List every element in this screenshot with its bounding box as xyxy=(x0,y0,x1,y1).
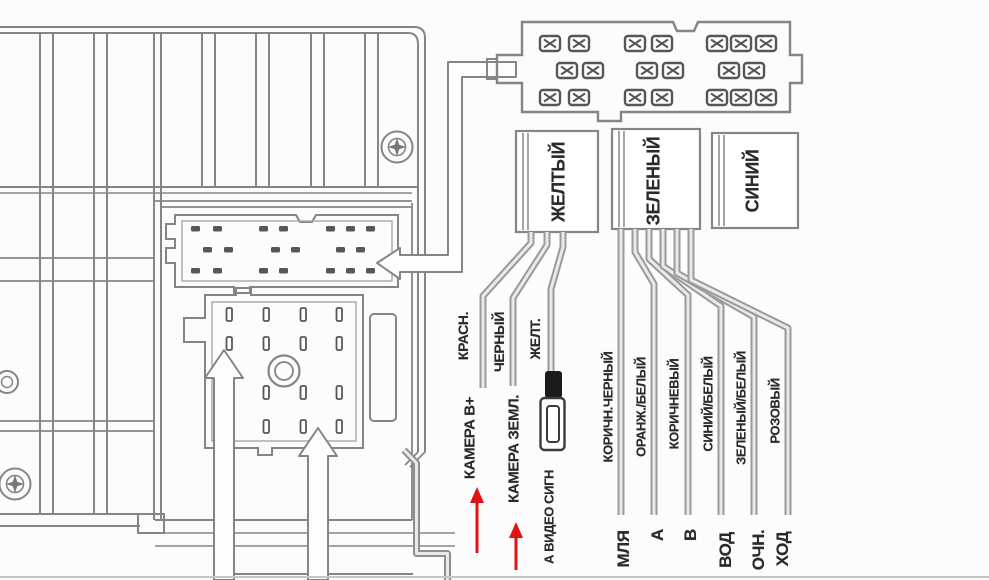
iso-pins xyxy=(540,36,776,105)
harness-wire-function-label: ОЧН. xyxy=(749,530,769,571)
upper-socket xyxy=(166,215,398,293)
camera-wire-color-label: КРАСН. xyxy=(455,312,471,360)
camera-wire-color-label: ЖЕЛТ. xyxy=(527,319,543,360)
upper-socket-pins xyxy=(191,226,375,274)
harness-wire-color-label: КОРИЧНЕВЫЙ xyxy=(667,359,682,450)
heatsink-fins xyxy=(0,33,418,520)
yellow-connector-label: ЖЕЛТЫЙ xyxy=(549,142,570,222)
harness-wire-color-label: СИНИЙ/БЕЛЫЙ xyxy=(701,356,716,451)
harness-wire-function-label: В xyxy=(681,529,701,541)
lower-socket-pins xyxy=(227,308,343,433)
screw-icon xyxy=(0,371,18,393)
harness-wire-function-label: ВОД xyxy=(716,532,736,568)
side-slot xyxy=(370,314,396,421)
harness-wire-color-label: ЗЕЛЕНЫЙ/БЕЛЫЙ xyxy=(734,351,749,465)
green-connector-label: ЗЕЛЕНЫЙ xyxy=(644,137,665,226)
bottom-cable xyxy=(404,450,448,580)
screw-icon xyxy=(382,132,413,163)
camera-wire-function-label: А ВИДЕО СИГН xyxy=(542,470,557,564)
harness-wire-color-label: ОРАНЖ./БЕЛЫЙ xyxy=(634,357,649,457)
rca-plug-icon xyxy=(541,371,565,450)
harness-wire-color-label: РОЗОВЫЙ xyxy=(768,378,783,443)
diagram-linework xyxy=(0,0,989,580)
blue-connector-label: СИНИЙ xyxy=(743,150,764,213)
harness-wire-function-label: МЛЯ xyxy=(614,530,634,567)
camera-wire-function-label: КАМЕРА ЗЕМЛ. xyxy=(506,395,523,503)
screw-icon xyxy=(0,469,31,500)
red-arrow-up-icon xyxy=(470,487,484,553)
harness-wire-function-label: ХОД xyxy=(773,532,793,567)
iso-connector-block xyxy=(487,22,802,121)
harness-wire-function-label: А xyxy=(648,529,668,541)
camera-wire-color-label: ЧЕРНЫЙ xyxy=(491,312,507,372)
center-hole xyxy=(269,356,300,387)
wiring-diagram: ЖЕЛТЫЙ ЗЕЛЕНЫЙ СИНИЙ КРАСН. ЧЕРНЫЙ ЖЕЛТ.… xyxy=(0,0,989,580)
red-arrow-up-icon xyxy=(509,522,523,570)
up-arrow-right xyxy=(299,428,337,580)
harness-wire-color-label: КОРИЧН.ЧЕРНЫЙ xyxy=(601,352,616,463)
camera-wire-function-label: КАМЕРА В+ xyxy=(462,397,479,479)
